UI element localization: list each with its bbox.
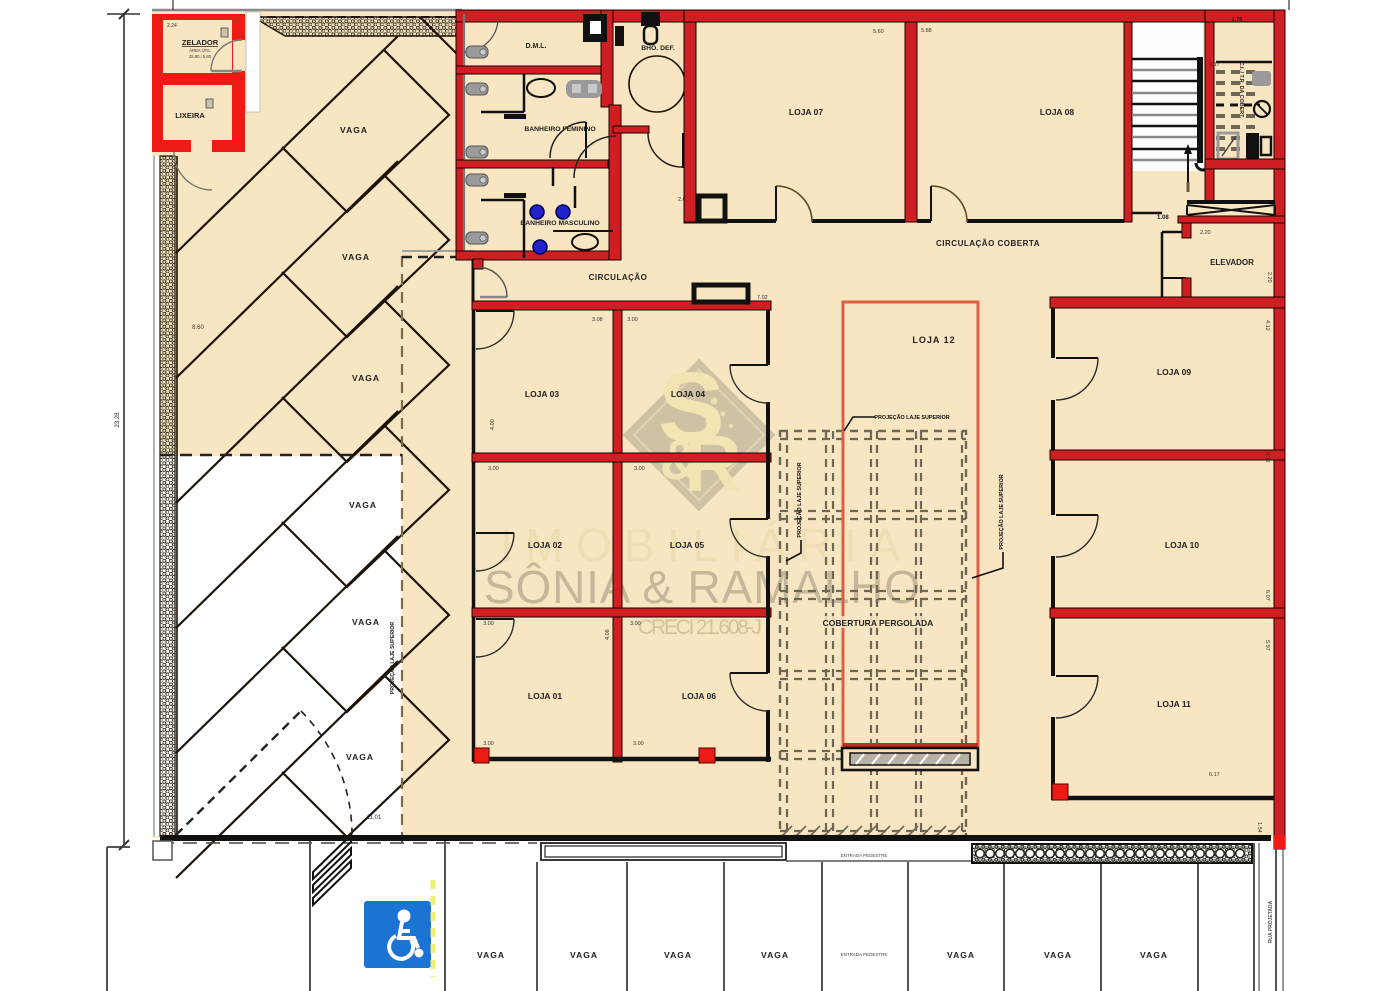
svg-text:3.00: 3.00	[627, 317, 638, 323]
svg-text:3.00: 3.00	[633, 741, 644, 747]
svg-text:5.97: 5.97	[1264, 640, 1270, 651]
svg-text:R: R	[684, 419, 742, 508]
svg-text:ZELADOR: ZELADOR	[182, 38, 219, 47]
svg-text:4.08: 4.08	[605, 629, 611, 640]
svg-text:5.60: 5.60	[873, 29, 884, 35]
svg-text:ELEVADOR: ELEVADOR	[1210, 258, 1254, 267]
svg-text:VAGA: VAGA	[349, 500, 377, 510]
svg-text:BANHEIRO MASCULINO: BANHEIRO MASCULINO	[520, 220, 599, 227]
svg-text:2.20: 2.20	[1266, 272, 1272, 283]
svg-text:C.I. / T.R. DA COBERT.: C.I. / T.R. DA COBERT.	[1238, 62, 1244, 119]
svg-text:VAGA: VAGA	[1044, 950, 1072, 960]
svg-text:6.17: 6.17	[1209, 62, 1220, 68]
svg-text:ENTRADA PEDESTRE: ENTRADA PEDESTRE	[841, 952, 888, 957]
svg-text:PROJEÇÃO LAJE SUPERIOR: PROJEÇÃO LAJE SUPERIOR	[998, 474, 1005, 549]
svg-text:6.07: 6.07	[1264, 590, 1270, 601]
svg-text:2.24: 2.24	[167, 23, 177, 29]
svg-text:1.78: 1.78	[1232, 17, 1243, 23]
svg-text:VAGA: VAGA	[342, 252, 370, 262]
svg-text:2.20: 2.20	[1200, 230, 1211, 236]
svg-text:1.54: 1.54	[1256, 822, 1262, 833]
svg-text:RUA PROJETADA: RUA PROJETADA	[1268, 900, 1274, 943]
svg-text:LOJA 09: LOJA 09	[1157, 367, 1191, 377]
svg-text:VAGA: VAGA	[340, 125, 368, 135]
svg-text:LOJA 08: LOJA 08	[1040, 107, 1074, 117]
svg-text:ENTRADA PEDESTRE: ENTRADA PEDESTRE	[841, 853, 888, 858]
svg-text:LOJA 02: LOJA 02	[528, 540, 562, 550]
svg-text:3.00: 3.00	[488, 466, 499, 472]
svg-text:3.00: 3.00	[630, 621, 641, 627]
svg-text:3.08: 3.08	[592, 317, 603, 323]
svg-text:4.12: 4.12	[1264, 452, 1270, 463]
svg-text:LOJA 01: LOJA 01	[528, 691, 562, 701]
svg-text:23.28: 23.28	[115, 412, 121, 428]
svg-text:4.12: 4.12	[1264, 320, 1270, 331]
svg-text:LOJA 10: LOJA 10	[1165, 540, 1199, 550]
svg-text:LOJA 04: LOJA 04	[671, 389, 705, 399]
svg-text:COBERTURA PERGOLADA: COBERTURA PERGOLADA	[823, 618, 934, 628]
svg-text:LOJA 06: LOJA 06	[682, 691, 716, 701]
svg-text:LOJA 05: LOJA 05	[670, 540, 704, 550]
svg-text:4.00: 4.00	[490, 419, 496, 430]
svg-text:3.00: 3.00	[483, 741, 494, 747]
svg-text:LOJA 12: LOJA 12	[912, 335, 955, 345]
svg-text:VAGA: VAGA	[352, 617, 380, 627]
svg-text:1.08: 1.08	[1157, 215, 1169, 221]
svg-text:3.00: 3.00	[483, 621, 494, 627]
svg-text:ÁREA ÚTIL: ÁREA ÚTIL	[189, 48, 211, 53]
svg-text:SÔNIA & RAMALHO: SÔNIA & RAMALHO	[484, 561, 920, 613]
svg-text:6.17: 6.17	[1209, 772, 1220, 778]
svg-text:VAGA: VAGA	[1140, 950, 1168, 960]
svg-text:LOJA 07: LOJA 07	[789, 107, 823, 117]
svg-text:BANHEIRO FEMININO: BANHEIRO FEMININO	[524, 126, 595, 133]
svg-text:CIRCULAÇÃO COBERTA: CIRCULAÇÃO COBERTA	[936, 239, 1040, 248]
svg-text:VAGA: VAGA	[570, 950, 598, 960]
svg-text:VAGA: VAGA	[352, 373, 380, 383]
svg-text:3.00: 3.00	[634, 466, 645, 472]
svg-text:5.88: 5.88	[921, 28, 932, 34]
svg-text:PROJEÇÃO LAJE SUPERIOR: PROJEÇÃO LAJE SUPERIOR	[389, 622, 396, 695]
svg-text:25.80 / 5.80: 25.80 / 5.80	[189, 54, 212, 59]
svg-text:LOJA 11: LOJA 11	[1157, 699, 1191, 709]
svg-text:VAGA: VAGA	[947, 950, 975, 960]
svg-text:PROJEÇÃO LAJE SUPERIOR: PROJEÇÃO LAJE SUPERIOR	[796, 462, 803, 537]
svg-text:PROJEÇÃO LAJE SUPERIOR: PROJEÇÃO LAJE SUPERIOR	[874, 414, 949, 421]
svg-text:8.60: 8.60	[192, 325, 204, 331]
svg-text:LOJA 03: LOJA 03	[525, 389, 559, 399]
svg-text:CRECI 21.608-J: CRECI 21.608-J	[638, 616, 762, 639]
svg-text:VAGA: VAGA	[761, 950, 789, 960]
svg-text:7.02: 7.02	[757, 295, 768, 301]
svg-text:D.M.L.: D.M.L.	[526, 43, 547, 50]
svg-text:CIRCULAÇÃO: CIRCULAÇÃO	[589, 273, 648, 282]
svg-text:11.01: 11.01	[367, 815, 382, 821]
svg-text:LIXEIRA: LIXEIRA	[175, 111, 205, 120]
svg-text:VAGA: VAGA	[664, 950, 692, 960]
svg-text:VAGA: VAGA	[477, 950, 505, 960]
svg-text:VAGA: VAGA	[346, 752, 374, 762]
svg-text:BHO. DEF.: BHO. DEF.	[641, 45, 675, 52]
